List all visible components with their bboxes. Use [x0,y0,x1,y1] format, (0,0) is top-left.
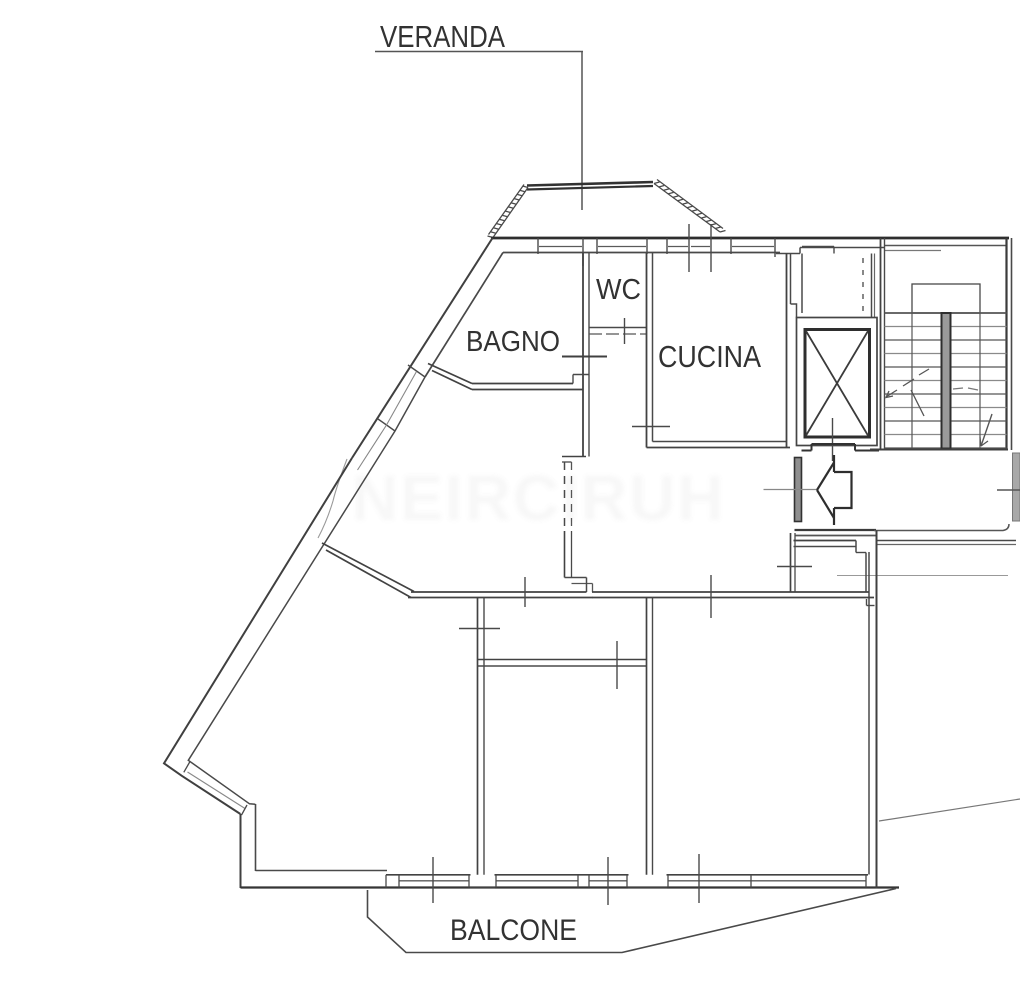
svg-text:CUCINA: CUCINA [658,339,761,374]
svg-text:NEIRCIRUH: NEIRCIRUH [352,462,726,534]
svg-text:VERANDA: VERANDA [380,19,505,54]
svg-text:WC: WC [596,274,641,306]
svg-text:BAGNO: BAGNO [466,326,560,358]
svg-text:BALCONE: BALCONE [450,914,577,947]
